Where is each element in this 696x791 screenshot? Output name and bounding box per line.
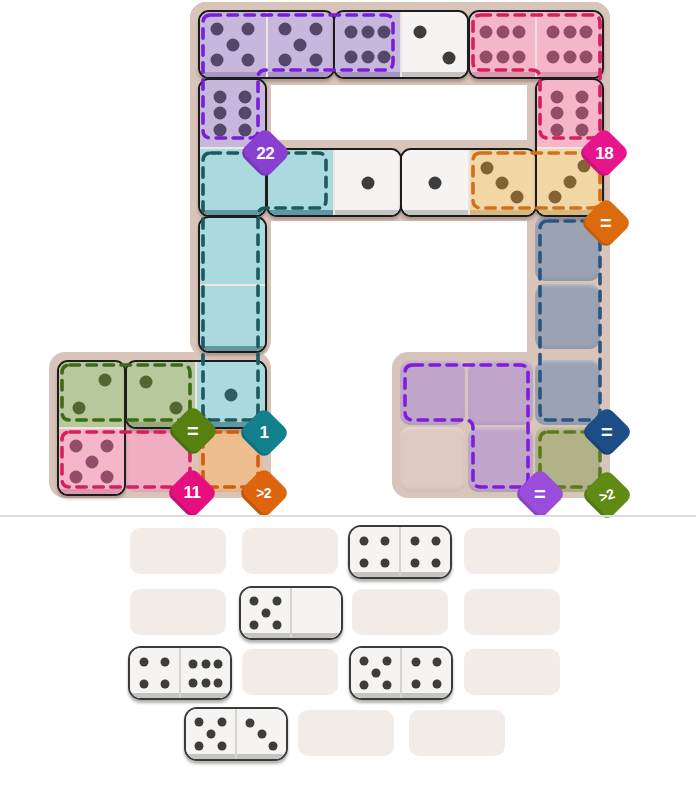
pip	[563, 175, 576, 188]
pip	[433, 680, 442, 689]
tray-slot	[409, 710, 505, 756]
pip	[225, 388, 238, 401]
pip	[547, 26, 560, 39]
pip	[371, 669, 380, 678]
pip	[85, 455, 98, 468]
pip	[345, 26, 358, 39]
domino-half-4	[130, 648, 179, 698]
tray-slot	[242, 649, 338, 695]
pip	[345, 50, 358, 63]
domino-half-3	[237, 709, 286, 759]
pip	[433, 658, 442, 667]
pip	[294, 38, 307, 51]
tray-domino-4-4[interactable]	[348, 525, 452, 579]
pip	[242, 54, 255, 67]
pip	[139, 658, 148, 667]
pip	[575, 123, 588, 136]
pip	[194, 718, 203, 727]
board-cell-plain-cell[interactable]	[400, 427, 465, 492]
pip	[496, 176, 509, 189]
domino-half-6	[335, 12, 400, 77]
tray-slot	[352, 589, 448, 635]
pip	[72, 401, 85, 414]
pip	[359, 537, 368, 546]
pip	[194, 742, 203, 751]
pip	[551, 107, 564, 120]
pip	[101, 439, 114, 452]
domino-half-4	[401, 527, 450, 577]
tray-slot	[464, 589, 560, 635]
board-cell-gray-cell-3[interactable]	[535, 360, 600, 425]
pip	[238, 123, 251, 136]
pip	[359, 681, 368, 690]
constraint-badge-label: >2	[598, 486, 617, 504]
pip	[414, 25, 427, 38]
pip	[496, 50, 509, 63]
placed-domino-1-3[interactable]	[400, 148, 537, 217]
pip	[428, 176, 441, 189]
pip	[101, 471, 114, 484]
pip	[201, 659, 210, 668]
pip	[575, 90, 588, 103]
pip	[511, 191, 524, 204]
pip	[238, 107, 251, 120]
pip	[211, 54, 224, 67]
domino-half-2	[59, 362, 124, 427]
placed-domino-6-6[interactable]	[468, 10, 604, 79]
domino-half-0	[200, 286, 265, 352]
pip	[563, 50, 576, 63]
domino-half-0	[200, 218, 265, 284]
placed-domino-0-0[interactable]	[198, 216, 267, 353]
pip	[273, 621, 282, 630]
pip	[547, 50, 560, 63]
pip	[579, 50, 592, 63]
constraint-badge-label: =	[534, 484, 545, 504]
pip	[278, 54, 291, 67]
pip	[512, 26, 525, 39]
pip	[98, 374, 111, 387]
constraint-badge-label: =	[600, 213, 611, 233]
domino-half-4	[402, 648, 451, 698]
domino-half-0	[292, 588, 341, 638]
tray-slot	[298, 710, 394, 756]
constraint-badge-label: 11	[184, 484, 201, 501]
pip	[261, 609, 270, 618]
board-cell-gray-cell-2[interactable]	[535, 284, 600, 349]
pip	[359, 559, 368, 568]
placed-domino-6-2[interactable]	[333, 10, 469, 79]
domino-half-2	[402, 12, 467, 77]
pip	[410, 537, 419, 546]
tray-slot	[130, 528, 226, 574]
pip	[69, 439, 82, 452]
pip	[213, 659, 222, 668]
tray-domino-5-0[interactable]	[239, 586, 343, 640]
board-cell-purple-cell-2[interactable]	[468, 360, 533, 425]
tray-domino-5-3[interactable]	[184, 707, 288, 761]
domino-half-1	[335, 150, 400, 215]
pip	[273, 597, 282, 606]
pip	[214, 90, 227, 103]
pip	[246, 718, 255, 727]
tray-domino-4-6[interactable]	[128, 646, 232, 700]
pip	[211, 22, 224, 35]
pip	[361, 176, 374, 189]
placed-domino-0-1[interactable]	[266, 148, 402, 217]
domino-half-6	[537, 80, 602, 147]
domino-half-1	[402, 150, 468, 215]
pip	[381, 559, 390, 568]
pip	[383, 681, 392, 690]
domino-half-5	[241, 588, 290, 638]
pip	[432, 559, 441, 568]
constraint-badge-label: >2	[257, 486, 272, 500]
domino-half-5	[200, 12, 266, 77]
pip	[218, 742, 227, 751]
pip	[214, 123, 227, 136]
domino-half-5	[186, 709, 235, 759]
pip	[214, 107, 227, 120]
board-cell-purple-cell-3[interactable]	[468, 427, 533, 492]
pip	[442, 51, 455, 64]
constraint-badge-label: 18	[595, 144, 613, 161]
pip	[161, 680, 170, 689]
pip	[383, 657, 392, 666]
pip	[206, 730, 215, 739]
pip	[411, 658, 420, 667]
pip	[512, 50, 525, 63]
pip	[249, 597, 258, 606]
pip	[161, 658, 170, 667]
domino-half-3	[470, 150, 536, 215]
pip	[496, 26, 509, 39]
pip	[226, 38, 239, 51]
pip	[411, 680, 420, 689]
constraint-badge-label: =	[601, 422, 612, 442]
pip	[579, 26, 592, 39]
tray-domino-5-4[interactable]	[349, 646, 453, 700]
pip	[189, 659, 198, 668]
pip	[238, 90, 251, 103]
pip	[278, 22, 291, 35]
pip	[381, 537, 390, 546]
tray-slot	[464, 649, 560, 695]
pip	[410, 559, 419, 568]
pip	[551, 90, 564, 103]
pip	[563, 26, 576, 39]
pip	[361, 50, 374, 63]
pip	[359, 657, 368, 666]
pip	[551, 123, 564, 136]
pip	[242, 22, 255, 35]
pip	[548, 191, 561, 204]
domino-half-5	[351, 648, 400, 698]
pip	[361, 26, 374, 39]
constraint-badge-label: =	[187, 421, 198, 441]
pip	[69, 471, 82, 484]
tray-slot	[464, 528, 560, 574]
pip	[213, 678, 222, 687]
pip	[377, 26, 390, 39]
pip	[257, 730, 266, 739]
pip	[481, 161, 494, 174]
pip	[268, 741, 277, 750]
tray-slot	[242, 528, 338, 574]
pip	[377, 50, 390, 63]
constraint-badge-label: 1	[260, 425, 269, 442]
board-tray-divider	[0, 515, 696, 517]
pip	[169, 401, 182, 414]
pip	[575, 107, 588, 120]
placed-domino-5-5[interactable]	[198, 10, 335, 79]
pips-puzzle-page: 2218=1=>2==11>2	[0, 0, 696, 791]
board-cell-purple-cell-1[interactable]	[400, 360, 465, 425]
pip	[218, 718, 227, 727]
pip	[480, 50, 493, 63]
tray-slot	[130, 589, 226, 635]
domino-half-6	[537, 12, 602, 77]
domino-half-6	[181, 648, 230, 698]
pip	[309, 22, 322, 35]
pip	[140, 375, 153, 388]
pip	[432, 537, 441, 546]
domino-half-5	[59, 429, 124, 494]
pip	[189, 678, 198, 687]
pip	[480, 26, 493, 39]
domino-half-5	[268, 12, 334, 77]
pip	[139, 680, 148, 689]
domino-half-4	[350, 527, 399, 577]
constraint-badge-label: 22	[256, 144, 274, 161]
placed-domino-2-5[interactable]	[57, 360, 126, 496]
pip	[201, 678, 210, 687]
pip	[309, 54, 322, 67]
pip	[249, 621, 258, 630]
domino-half-6	[470, 12, 535, 77]
